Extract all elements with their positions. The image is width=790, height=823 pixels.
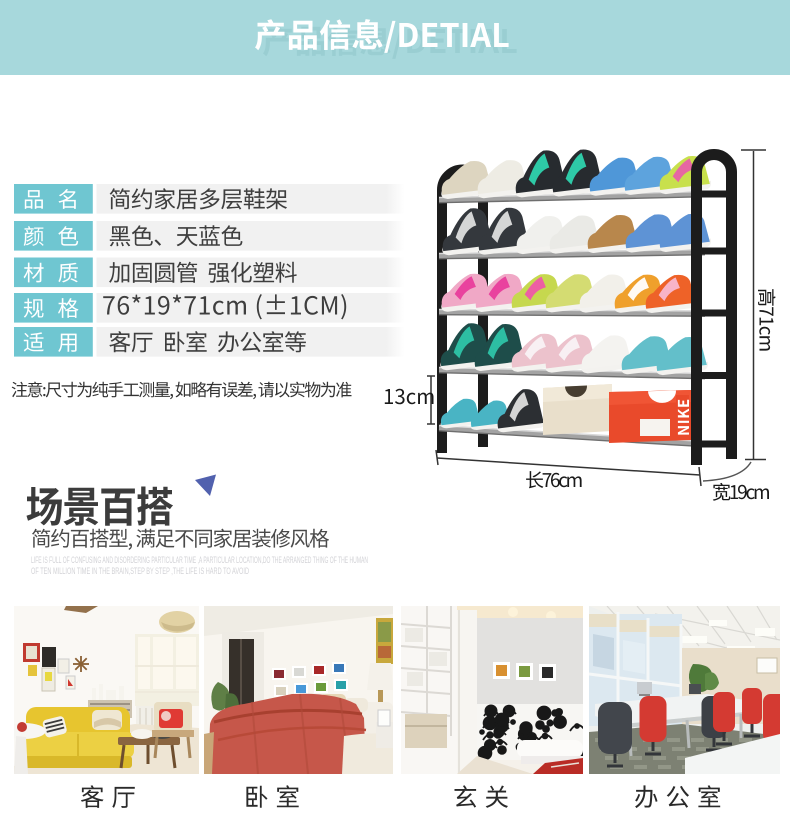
svg-text:OF TEN MILLION TIME IN THE BRA: OF TEN MILLION TIME IN THE BRAIN,STEP BY… <box>31 566 249 576</box>
svg-text:LIFE IS FULL OF CONFUSING AND: LIFE IS FULL OF CONFUSING AND DISORDERIN… <box>31 555 368 565</box>
